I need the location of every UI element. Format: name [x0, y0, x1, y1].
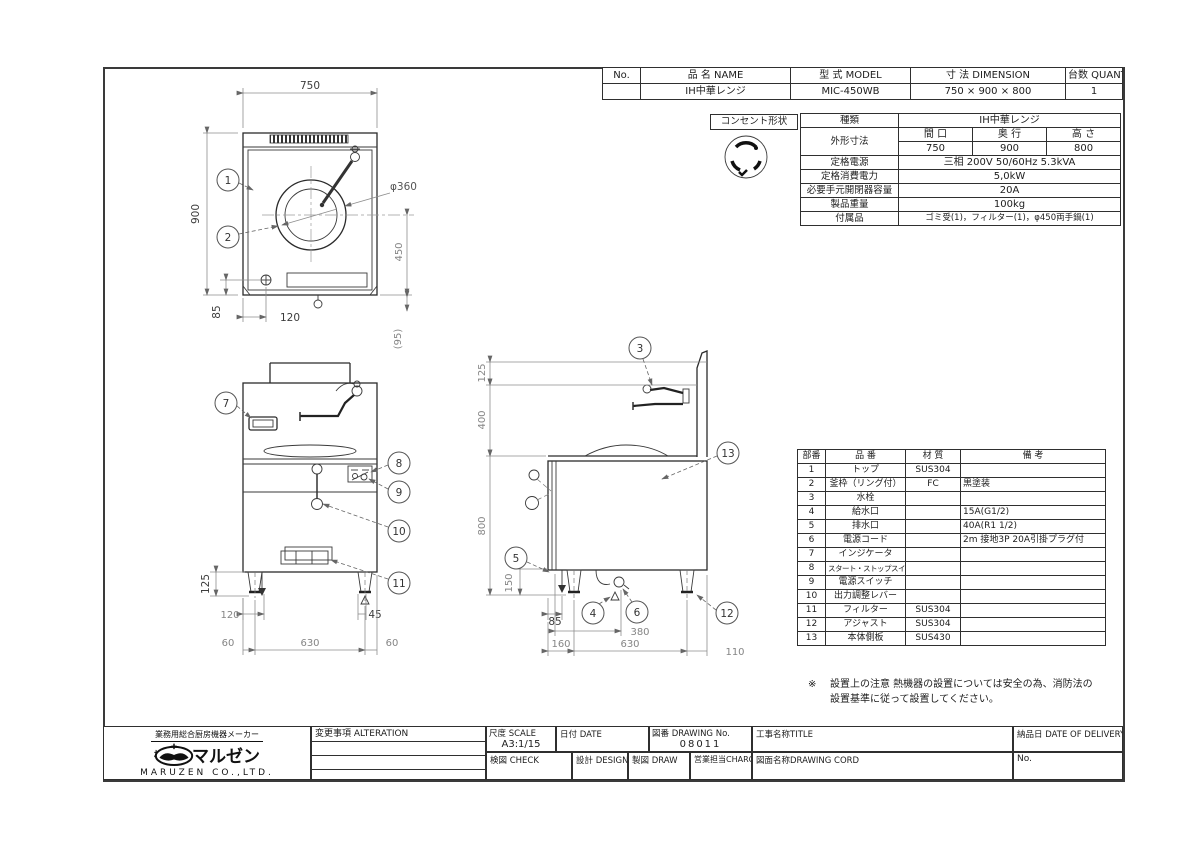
knob-side-upper — [529, 470, 539, 480]
spec-weight-label: 製品重量 — [801, 198, 899, 212]
dim-side-110: 110 — [725, 647, 744, 658]
dim-front-120: 120 — [220, 610, 239, 621]
parts-h-note: 備 考 — [961, 450, 1106, 464]
exhaust-grille — [270, 135, 348, 143]
callout-6: 6 — [623, 589, 648, 623]
spec-width-value: 750 — [899, 142, 973, 156]
callout-11: 11 — [331, 560, 410, 594]
svg-text:3: 3 — [637, 343, 644, 355]
table-row: 7インジケータ — [798, 548, 1106, 562]
dim-side-800: 800 — [477, 516, 488, 535]
drawing-no-cell: 図番 DRAWING No. 08011 — [649, 726, 752, 752]
svg-text:1: 1 — [225, 175, 232, 187]
date-label: 日付 DATE — [560, 730, 602, 740]
power-plug — [614, 577, 624, 587]
filter-front — [281, 547, 332, 564]
svg-text:7: 7 — [223, 398, 230, 410]
svg-text:10: 10 — [392, 526, 405, 538]
header-name-label: 品 名 NAME — [641, 68, 791, 84]
svg-text:8: 8 — [396, 458, 403, 470]
faucet-front — [300, 395, 354, 416]
title-block: 業務用総合厨房機器メーカー 株式会社マルゼン MARUZEN CO.,LTD. … — [103, 726, 1123, 780]
twist-lock-receptacle-icon — [716, 132, 778, 184]
svg-text:9: 9 — [396, 487, 403, 499]
dim-front-45: 45 — [368, 609, 381, 621]
table-row: 6電源コード2m 接地3P 20A引掛プラグ付 — [798, 534, 1106, 548]
scale-value: A3:1/15 — [487, 739, 555, 750]
dim-side-160: 160 — [551, 639, 570, 650]
table-row: 5排水口40A(R1 1/2) — [798, 520, 1106, 534]
callout-10: 10 — [323, 504, 410, 542]
header-name-value: IH中華レンジ — [641, 84, 791, 100]
drawing-no-value: 08011 — [650, 739, 751, 750]
table-row: 10出力調整レバー — [798, 590, 1106, 604]
drain-outlet — [314, 300, 322, 308]
header-no-label: No. — [603, 68, 641, 84]
table-row: 13本体側板SUS430 — [798, 632, 1106, 646]
dim-side-380: 380 — [630, 627, 649, 638]
drawing-no-label: 図番 DRAWING No. — [650, 727, 751, 739]
spec-col-depth: 奥 行 — [973, 128, 1047, 142]
table-row: 9電源スイッチ — [798, 576, 1106, 590]
maker-cell: 業務用総合厨房機器メーカー 株式会社マルゼン MARUZEN CO.,LTD. — [103, 726, 311, 780]
svg-text:2: 2 — [225, 232, 232, 244]
scale-cell: 尺度 SCALE A3:1/15 — [486, 726, 556, 752]
parts-h-name: 品 番 — [826, 450, 906, 464]
spec-type-value: IH中華レンジ — [899, 114, 1121, 128]
callout-7: 7 — [215, 392, 251, 418]
note-line2: 設置基準に従って設置してください。 — [830, 692, 1138, 707]
faucet-side — [633, 385, 689, 410]
table-row: 3水栓 — [798, 492, 1106, 506]
maker-tagline: 業務用総合厨房機器メーカー — [151, 729, 263, 742]
inlet-arrow-side — [611, 592, 619, 600]
check-label: 検図 CHECK — [490, 756, 539, 766]
dim-front-60-right: 60 — [386, 638, 399, 649]
drain-arrow-side — [558, 585, 566, 593]
header-model-label: 型 式 MODEL — [791, 68, 911, 84]
plan-body-outline — [243, 133, 377, 295]
dim-120: 120 — [280, 312, 300, 324]
dim-side-400: 400 — [477, 410, 488, 429]
header-qty-value: 1 — [1066, 84, 1123, 100]
header-table: No. 品 名 NAME 型 式 MODEL 寸 法 DIMENSION 台数 … — [602, 67, 1123, 100]
header-dim-value: 750 × 900 × 800 — [911, 84, 1066, 100]
callout-9: 9 — [369, 479, 410, 503]
dim-front-630: 630 — [300, 638, 319, 649]
callout-12: 12 — [697, 595, 738, 624]
svg-text:6: 6 — [634, 607, 641, 619]
spec-accessories-value: ゴミ受(1)，フィルター(1)，φ450両手鍋(1) — [899, 212, 1121, 226]
no-label: No. — [1017, 754, 1032, 764]
maker-company-name: マルゼン — [192, 742, 260, 767]
dim-side-630: 630 — [620, 639, 639, 650]
parts-h-no: 部番 — [798, 450, 826, 464]
plan-view: 750 900 450 85 120 (95) φ360 1 2 — [185, 75, 430, 360]
maker-company-en: MARUZEN CO.,LTD. — [107, 768, 307, 778]
dim-95: (95) — [393, 329, 404, 350]
alteration-label: 変更事項 ALTERATION — [312, 727, 485, 742]
spec-breaker-value: 20A — [899, 184, 1121, 198]
installation-note: ※ 設置上の注意 熱機器の設置については安全の為、消防法の 設置基準に従って設置… — [808, 677, 1138, 707]
spec-accessories-label: 付属品 — [801, 212, 899, 226]
drawing-cord-cell: 図面名称DRAWING CORD — [752, 752, 1013, 780]
power-cord — [596, 570, 610, 584]
project-title-label: 工事名称TITLE — [756, 730, 813, 740]
dim-leg-125: 125 — [200, 574, 212, 594]
callout-2: 2 — [217, 226, 278, 248]
alteration-cell: 変更事項 ALTERATION — [311, 726, 486, 780]
draw-label: 製図 DRAW — [632, 756, 678, 766]
drawing-cord-label: 図面名称DRAWING CORD — [756, 756, 859, 766]
dim-85: 85 — [211, 305, 223, 318]
spec-breaker-label: 必要手元開閉器容量 — [801, 184, 899, 198]
svg-text:4: 4 — [590, 608, 597, 620]
spec-power-label: 定格電源 — [801, 156, 899, 170]
svg-text:12: 12 — [720, 608, 733, 620]
table-row: 2釜枠（リング付）FC黒塗装 — [798, 478, 1106, 492]
spec-col-height: 高 さ — [1047, 128, 1121, 142]
callout-5: 5 — [505, 547, 549, 572]
check-cell: 検図 CHECK — [486, 752, 572, 780]
table-row: 12アジャストSUS304 — [798, 618, 1106, 632]
front-view: 125 120 45 60 630 60 7 8 9 10 11 — [200, 358, 430, 693]
header-dim-label: 寸 法 DIMENSION — [911, 68, 1066, 84]
header-no-value — [603, 84, 641, 100]
spec-col-width: 間 口 — [899, 128, 973, 142]
no-cell: No. — [1013, 752, 1123, 780]
draw-cell: 製図 DRAW — [628, 752, 690, 780]
parts-h-material: 材 質 — [906, 450, 961, 464]
dim-diameter: φ360 — [390, 181, 417, 193]
table-row: 8スタート・ストップスイッチ — [798, 562, 1106, 576]
dim-front-60-left: 60 — [222, 638, 235, 649]
wok-ring-side — [585, 445, 668, 456]
callout-4: 4 — [582, 597, 610, 624]
spec-type-label: 種類 — [801, 114, 899, 128]
project-title-cell: 工事名称TITLE — [752, 726, 1013, 752]
dim-450: 450 — [394, 242, 405, 261]
dim-depth: 900 — [190, 204, 202, 224]
spec-consumption-label: 定格消費電力 — [801, 170, 899, 184]
spec-height-value: 800 — [1047, 142, 1121, 156]
charge-cell: 営業担当CHARGE — [690, 752, 752, 780]
dim-side-125: 125 — [477, 363, 488, 382]
parts-table: 部番 品 番 材 質 備 考 1トップSUS304 2釜枠（リング付）FC黒塗装… — [797, 449, 1106, 646]
delivery-date-label: 納品日 DATE OF DELIVERY — [1017, 730, 1123, 740]
backsplash — [697, 351, 707, 457]
svg-text:5: 5 — [513, 553, 520, 565]
wok-ring-front — [264, 445, 356, 457]
side-view: 125 400 800 150 85 380 160 630 110 3 13 … — [480, 335, 770, 665]
table-row: 4給水口15A(G1/2) — [798, 506, 1106, 520]
delivery-date-cell: 納品日 DATE OF DELIVERY — [1013, 726, 1123, 752]
side-body-outline — [548, 461, 707, 570]
output-lever — [312, 464, 323, 510]
date-cell: 日付 DATE — [556, 726, 649, 752]
design-cell: 設計 DESIGN — [572, 752, 628, 780]
design-label: 設計 DESIGN — [576, 756, 628, 766]
scale-label: 尺度 SCALE — [487, 727, 555, 739]
charge-label: 営業担当CHARGE — [694, 755, 752, 764]
spec-consumption-value: 5,0kW — [899, 170, 1121, 184]
header-qty-label: 台数 QUANTITY — [1066, 68, 1123, 84]
maruzen-logo-icon — [154, 743, 194, 767]
header-model-value: MIC-450WB — [791, 84, 911, 100]
control-box-plan — [287, 273, 367, 287]
dim-side-150: 150 — [504, 573, 515, 592]
table-row: 11フィルターSUS304 — [798, 604, 1106, 618]
faucet-arm-plan — [323, 161, 352, 203]
dim-width: 750 — [300, 80, 320, 92]
switch-panel — [348, 466, 372, 482]
spec-power-value: 三相 200V 50/60Hz 5.3kVA — [899, 156, 1121, 170]
svg-text:11: 11 — [392, 578, 405, 590]
svg-text:13: 13 — [721, 448, 734, 460]
spec-size-label: 外形寸法 — [801, 128, 899, 156]
spec-depth-value: 900 — [973, 142, 1047, 156]
spec-weight-value: 100kg — [899, 198, 1121, 212]
callout-3: 3 — [629, 337, 652, 385]
note-mark: ※ — [808, 677, 816, 692]
spec-table: 種類 IH中華レンジ 外形寸法 間 口 奥 行 高 さ 750 900 800 … — [800, 113, 1121, 226]
outlet-shape-label: コンセント形状 — [710, 114, 798, 130]
knob-side-lower — [526, 497, 539, 510]
note-line1: 設置上の注意 熱機器の設置については安全の為、消防法の — [830, 677, 1138, 692]
table-row: 1トップSUS304 — [798, 464, 1106, 478]
